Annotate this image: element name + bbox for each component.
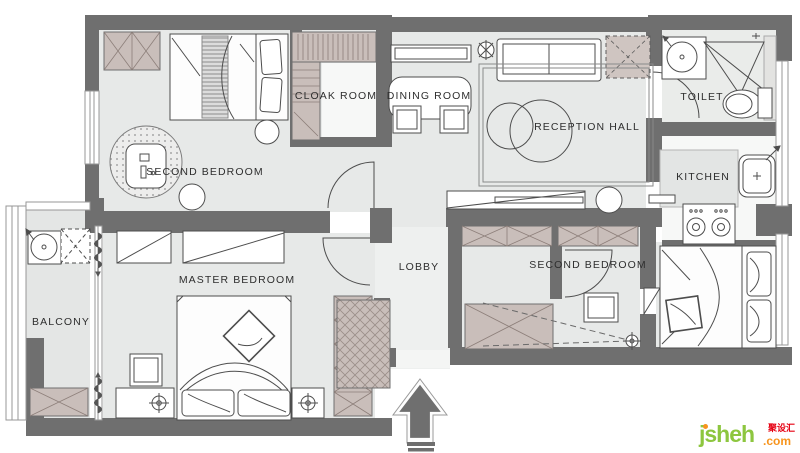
furniture-right-bedroom	[660, 246, 776, 348]
desk	[117, 231, 171, 263]
ac-unit-reception	[606, 36, 650, 78]
dining-chair	[440, 106, 468, 133]
floor-plan-drawing	[0, 0, 800, 453]
washing-machine	[26, 229, 61, 264]
side-table	[584, 293, 618, 322]
wardrobe-second-bedroom-top	[104, 32, 160, 70]
room-label-kitchen: KITCHEN	[676, 171, 730, 183]
sofa	[497, 39, 601, 81]
washbasin	[662, 36, 706, 79]
stove	[683, 204, 735, 244]
stool	[255, 120, 279, 144]
nightstand	[116, 388, 174, 418]
reserved-unit	[61, 229, 90, 263]
room-label-second-bedroom-bottom: SECOND BEDROOM	[529, 259, 647, 271]
floor-plan: SECOND BEDROOM CLOAK ROOM DINING ROOM RE…	[0, 0, 800, 453]
bed-right-bedroom	[660, 246, 776, 348]
room-label-master-bedroom: MASTER BEDROOM	[179, 274, 295, 286]
room-label-lobby: LOBBY	[399, 261, 440, 273]
bed-second-bedroom-top	[170, 34, 288, 120]
logo-cjk-text: 聚设汇	[768, 421, 795, 434]
room-label-balcony: BALCONY	[32, 316, 90, 328]
shelf	[649, 195, 675, 203]
cabinet-lobby	[337, 300, 390, 388]
wc	[723, 88, 772, 118]
logo-dot-icon	[703, 424, 708, 429]
stool	[596, 187, 622, 213]
nightstand	[292, 388, 324, 418]
entry-arrow-icon	[393, 379, 447, 452]
logo-tld-text: .com	[763, 434, 791, 448]
dining-chair	[393, 106, 421, 133]
tv-cabinet	[447, 191, 585, 209]
cabinet-balcony	[30, 388, 88, 416]
rug-and-chair	[110, 126, 182, 198]
room-label-dining-room: DINING ROOM	[387, 90, 471, 102]
wardrobe-second-bedroom-bottom-2	[558, 226, 638, 246]
room-label-reception-hall: RECEPTION HALL	[534, 121, 640, 133]
wardrobe-second-bedroom-bottom-1	[462, 226, 552, 246]
room-label-toilet: TOILET	[680, 91, 723, 103]
side-table	[130, 354, 162, 386]
room-label-cloak-room: CLOAK ROOM	[295, 90, 377, 102]
stool	[179, 184, 205, 210]
watermark-logo: jsheh 聚设汇 .com	[699, 421, 797, 451]
room-label-second-bedroom-top: SECOND BEDROOM	[146, 166, 264, 178]
desk	[183, 231, 284, 263]
bed-master	[177, 296, 291, 420]
wardrobe-second-bedroom-bottom-3	[465, 304, 553, 349]
